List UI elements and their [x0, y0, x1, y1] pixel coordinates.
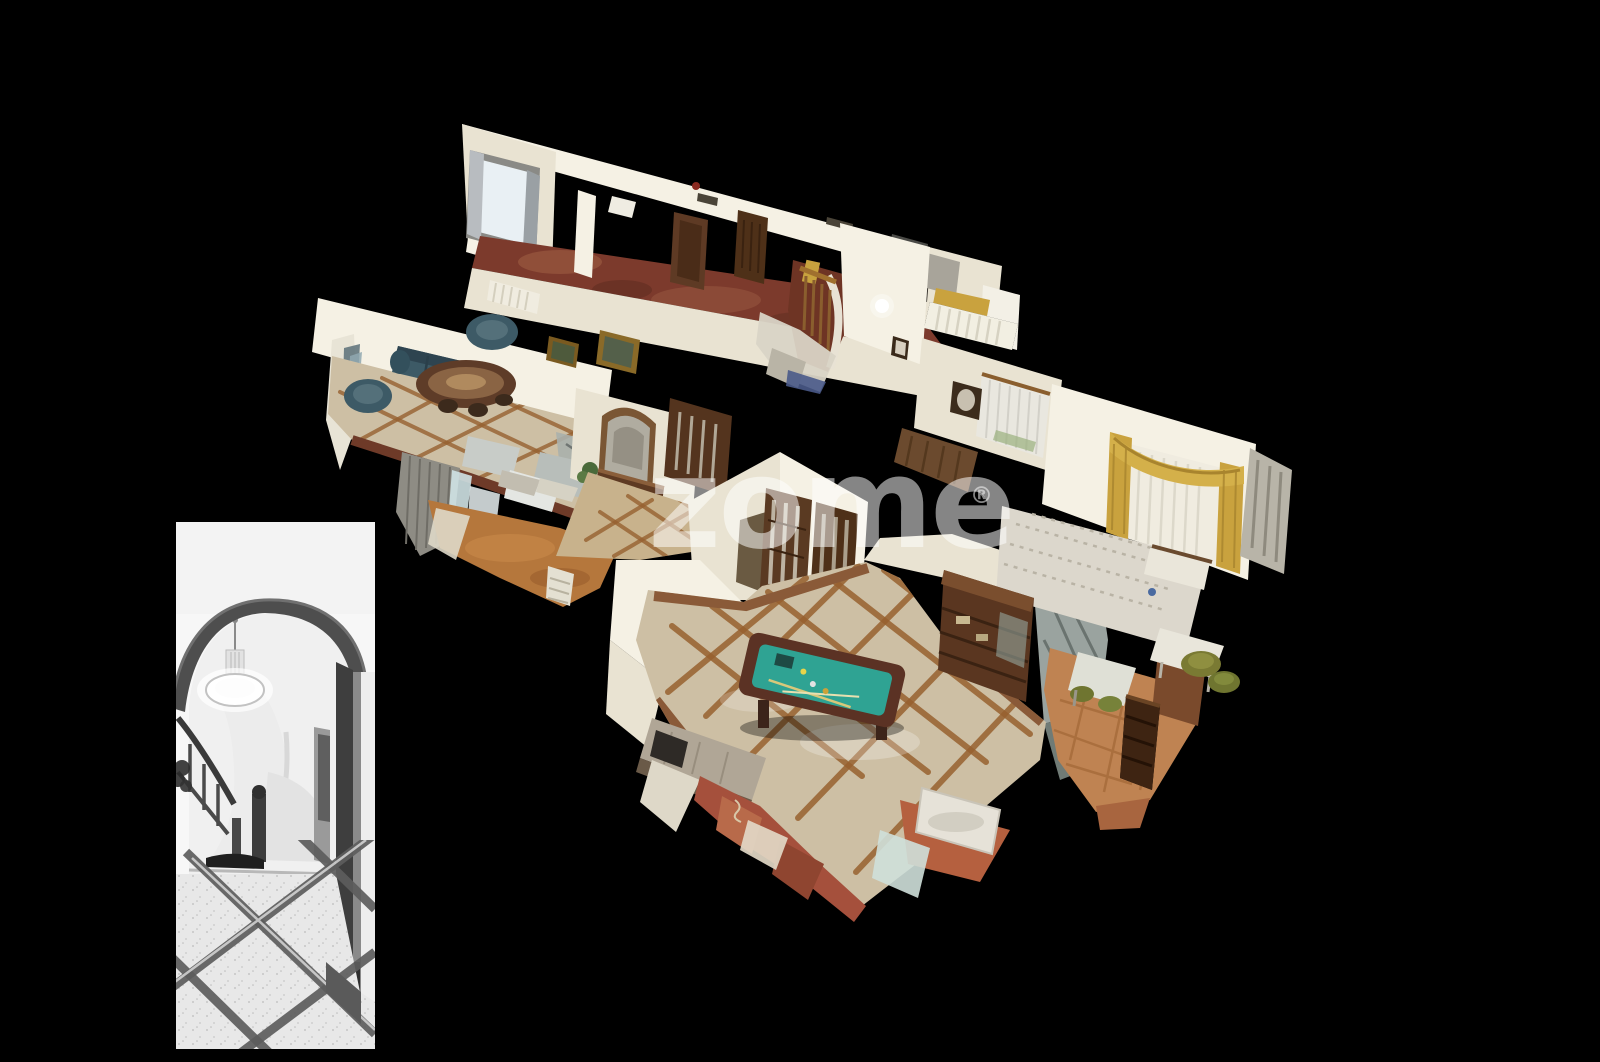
zome-watermark: zome ®	[648, 441, 1013, 567]
registered-trademark-symbol: ®	[970, 485, 993, 508]
leather-armchair	[466, 314, 518, 350]
watermark-text: zome	[648, 430, 1013, 577]
billiard-room	[606, 560, 1046, 922]
wood-door	[734, 210, 768, 284]
inner-doorway-dark	[318, 734, 330, 822]
hallway-photo-inset[interactable]	[176, 522, 375, 1049]
wall-table-fragment	[608, 196, 636, 218]
red-scan-fragment	[692, 182, 700, 190]
tall-door-frame	[670, 212, 708, 290]
blue-item	[1148, 588, 1156, 596]
leather-armchair	[344, 379, 392, 413]
screenshot-canvas: zome ®	[0, 0, 1600, 1062]
